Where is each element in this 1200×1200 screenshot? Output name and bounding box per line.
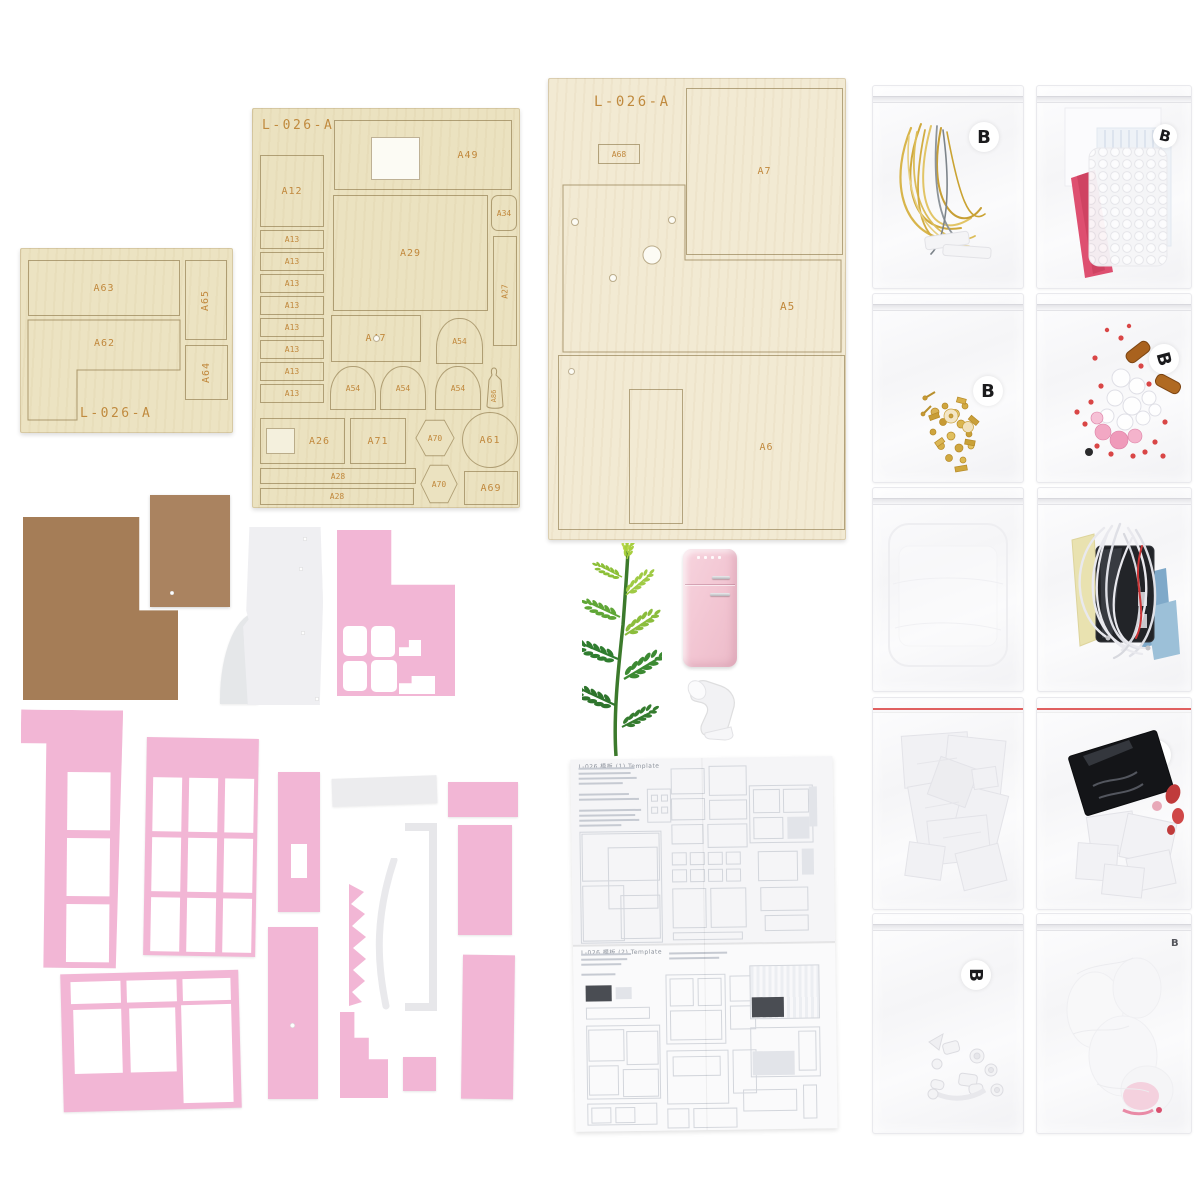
manual-diagram-box bbox=[588, 1029, 624, 1061]
manual-diagram-box bbox=[672, 852, 687, 865]
manual-diagram-box bbox=[709, 799, 747, 820]
white-bracket-piece bbox=[405, 823, 437, 1011]
wood-part-a54: A54 bbox=[380, 366, 426, 410]
bag-contents-pink-beads bbox=[1037, 294, 1191, 482]
pin-hole bbox=[303, 537, 307, 541]
part-label: A65 bbox=[201, 289, 212, 310]
wood-part-a29: A29 bbox=[333, 195, 488, 311]
wood-part-a86: A86 bbox=[484, 366, 508, 412]
manual-diagram-box bbox=[579, 819, 639, 822]
bag-contents-wires-battery bbox=[1038, 488, 1191, 691]
window-pane bbox=[151, 837, 181, 891]
manual-diagram-box bbox=[753, 817, 783, 839]
bag-contents-plastic-fittings bbox=[873, 914, 1023, 1133]
window-cutout bbox=[371, 137, 420, 180]
window-pane bbox=[66, 904, 109, 962]
door-cut bbox=[629, 389, 683, 524]
manual-diagram-box bbox=[581, 958, 627, 961]
pink-window-frame-tall bbox=[19, 710, 123, 969]
bag-label-badge: B bbox=[961, 960, 991, 990]
wood-part-a13: A13 bbox=[260, 296, 324, 315]
bag-label-badge: B bbox=[969, 122, 999, 152]
manual-diagram-box bbox=[579, 772, 631, 775]
wood-part-a6: A6 bbox=[558, 355, 845, 530]
svg-text:A86: A86 bbox=[490, 390, 498, 403]
bag-contents-soft-parts bbox=[1037, 914, 1191, 1133]
manual-diagram-box bbox=[707, 823, 747, 848]
bag-gold-beads: B bbox=[872, 293, 1024, 483]
manual-diagram-box bbox=[758, 851, 798, 882]
door-handle bbox=[710, 593, 730, 596]
pink-strip-with-hole bbox=[278, 772, 320, 912]
bag-contents-white-paper bbox=[873, 698, 1023, 909]
wood-part-a13: A13 bbox=[260, 230, 324, 249]
manual-diagram-box bbox=[586, 985, 612, 1001]
manual-diagram-box bbox=[765, 915, 809, 932]
pin-hole bbox=[290, 1023, 295, 1028]
manual-diagram-box bbox=[726, 851, 741, 864]
manual-diagram-box bbox=[581, 963, 621, 966]
manual-diagram-box bbox=[710, 887, 747, 927]
pink-stair-profile bbox=[340, 1012, 388, 1098]
freezer-handle bbox=[712, 576, 730, 579]
window-pane bbox=[150, 897, 180, 951]
manual-diagram-box bbox=[693, 1108, 737, 1129]
bag-label-badge: B bbox=[973, 376, 1003, 406]
manual-diagram-box bbox=[708, 852, 723, 865]
stair-cutout bbox=[371, 626, 395, 657]
bag-white-paper bbox=[872, 697, 1024, 910]
wood-part-a28: A28 bbox=[260, 468, 416, 484]
sheet-code: L-026-A bbox=[80, 406, 152, 421]
manual-diagram-box bbox=[579, 809, 641, 812]
plywood-sheet-3: L-026-A A68 A7 A5 A6 bbox=[548, 78, 846, 540]
bag-soft-parts: B bbox=[1036, 913, 1192, 1134]
manual-diagram-box bbox=[620, 895, 661, 940]
window-pane bbox=[152, 777, 182, 831]
manual-diagram-box bbox=[760, 887, 808, 912]
manual-diagram-box bbox=[589, 1065, 619, 1095]
wood-part-a13: A13 bbox=[260, 384, 324, 403]
bag-black-sheet: A bbox=[1036, 697, 1192, 910]
window-pane bbox=[129, 1007, 177, 1072]
white-curved-trim bbox=[372, 858, 402, 1010]
manual-diagram-box bbox=[753, 1051, 795, 1076]
pink-strip-tall bbox=[268, 927, 318, 1099]
wood-part-a13: A13 bbox=[260, 318, 324, 337]
pink-square-small bbox=[403, 1057, 436, 1091]
pink-zigzag-trim bbox=[344, 880, 374, 1010]
white-strip bbox=[332, 775, 438, 807]
manual-diagram-box bbox=[669, 957, 719, 960]
transom-pane bbox=[182, 978, 231, 1001]
manual-diagram-box bbox=[669, 978, 693, 1006]
manual-diagram-box bbox=[671, 768, 705, 794]
rect-cutout bbox=[291, 844, 307, 878]
wood-part-a49: A49 bbox=[334, 120, 512, 190]
pin-hole bbox=[299, 567, 303, 571]
miniature-fridge bbox=[683, 549, 737, 667]
miniature-tree bbox=[582, 543, 662, 758]
manual-diagram-box bbox=[671, 798, 705, 820]
bag-plastic-fittings: B bbox=[872, 913, 1024, 1134]
manual-diagram-box bbox=[579, 798, 639, 801]
wood-part-a70: A70 bbox=[415, 419, 455, 457]
manual-diagram-box bbox=[670, 1010, 722, 1041]
bag-clear-sheets bbox=[872, 487, 1024, 692]
pink-rect-tall bbox=[461, 955, 515, 1100]
pink-shopfront-frame bbox=[60, 970, 242, 1113]
drill-hole bbox=[373, 335, 380, 342]
stair-step-cutout bbox=[399, 640, 421, 656]
wood-part-a54: A54 bbox=[435, 366, 481, 410]
manual-diagram-box bbox=[752, 997, 784, 1017]
manual-diagram-box bbox=[616, 987, 632, 999]
manual-diagram-box bbox=[672, 869, 687, 882]
fridge-logo bbox=[697, 556, 700, 559]
white-elbow-part bbox=[685, 675, 743, 741]
wood-part-a13: A13 bbox=[260, 362, 324, 381]
window-pane bbox=[222, 898, 252, 952]
wood-part-a64: A64 bbox=[185, 345, 228, 400]
manual-diagram-box bbox=[753, 789, 780, 813]
manual-diagram-box bbox=[579, 782, 623, 785]
manual-diagram-box bbox=[669, 952, 727, 955]
manual-diagram-box bbox=[672, 888, 707, 928]
stair-step-cutout bbox=[399, 676, 435, 694]
window-pane bbox=[224, 778, 254, 832]
bag-label-small: B bbox=[1171, 938, 1179, 949]
bag-contents-wire bbox=[873, 86, 1023, 288]
window-pane bbox=[187, 838, 217, 892]
white-wall-piece bbox=[243, 527, 323, 705]
manual-diagram-box bbox=[809, 786, 818, 826]
pink-stair-wall bbox=[337, 530, 455, 696]
manual-diagram-box bbox=[787, 817, 809, 839]
bag-sheets: B bbox=[1036, 85, 1192, 289]
window-pane bbox=[223, 838, 253, 892]
manual-diagram-box bbox=[626, 1031, 658, 1065]
wood-part-a12: A12 bbox=[260, 155, 324, 227]
transom-pane bbox=[70, 981, 121, 1004]
wood-part-a54: A54 bbox=[436, 318, 483, 364]
cutout bbox=[266, 428, 295, 454]
manual-diagram-box bbox=[661, 794, 668, 801]
manual-diagram-box bbox=[586, 1007, 650, 1020]
manual-diagram-box bbox=[783, 789, 809, 813]
window-pane bbox=[188, 778, 218, 832]
manual-diagram-box bbox=[615, 1107, 635, 1123]
template-sheet: L-026 模板 (1) Template L-026 模板 (2) Templ… bbox=[570, 756, 837, 1132]
manual-diagram-box bbox=[673, 1056, 721, 1077]
manual-diagram-box bbox=[582, 885, 625, 942]
manual-diagram-box bbox=[743, 1089, 797, 1112]
transom-pane bbox=[126, 979, 177, 1002]
window-pane bbox=[66, 838, 109, 896]
wood-part-a70: A70 bbox=[420, 464, 458, 504]
pin-hole bbox=[315, 697, 319, 701]
bag-pink-beads: B bbox=[1036, 293, 1192, 483]
manual-diagram-box bbox=[579, 824, 621, 827]
manual-diagram-box bbox=[579, 814, 635, 817]
stair-cutout bbox=[343, 661, 367, 691]
drill-hole bbox=[568, 368, 575, 375]
sheet-code: L-026-A bbox=[262, 118, 334, 133]
freezer-divider bbox=[685, 584, 735, 585]
plywood-sheet-2: L-026-A A12 A13 A13 A13 A13 A13 A13 A13 … bbox=[252, 108, 520, 508]
stair-cutout bbox=[371, 660, 397, 692]
wood-part-a54: A54 bbox=[330, 366, 376, 410]
bag-contents-clear-sheets bbox=[873, 488, 1023, 691]
manual-diagram-box bbox=[651, 795, 658, 802]
bag-wire: B bbox=[872, 85, 1024, 289]
window-pane bbox=[67, 772, 110, 830]
cardboard-panel-small bbox=[150, 495, 230, 607]
wood-part-a69: A69 bbox=[464, 471, 518, 505]
manual-diagram-box bbox=[581, 973, 615, 975]
stair-cutout bbox=[343, 626, 367, 656]
wood-part-a13: A13 bbox=[260, 274, 324, 293]
manual-diagram-box bbox=[673, 931, 743, 940]
manual-diagram-box bbox=[803, 1084, 817, 1118]
manual-diagram-box bbox=[802, 848, 814, 874]
plywood-sheet-1: A63 A62 A65 A64 L-026-A bbox=[20, 248, 233, 433]
manual-diagram-box bbox=[661, 806, 668, 813]
window-pane bbox=[73, 1009, 123, 1074]
manual-diagram-box bbox=[709, 765, 747, 796]
manual-diagram-box bbox=[798, 1030, 817, 1070]
pin-hole bbox=[170, 591, 174, 595]
manual-diagram-box bbox=[591, 1107, 611, 1123]
door-opening bbox=[181, 1004, 234, 1103]
product-photo-dollhouse-kit: A63 A62 A65 A64 L-026-A L-026-A A12 A13 … bbox=[0, 0, 1200, 1200]
svg-text:A5: A5 bbox=[780, 300, 795, 313]
window-pane bbox=[186, 898, 216, 952]
wood-part-a13: A13 bbox=[260, 340, 324, 359]
manual-diagram-box bbox=[579, 777, 637, 780]
manual-diagram-box bbox=[697, 978, 721, 1006]
manual-diagram-box bbox=[623, 1069, 659, 1097]
wood-part-a65: A65 bbox=[185, 260, 227, 340]
manual-diagram-box bbox=[651, 807, 658, 814]
wood-part-a13: A13 bbox=[260, 252, 324, 271]
part-label: A62 bbox=[94, 338, 115, 349]
bag-wires-battery bbox=[1037, 487, 1192, 692]
wood-part-a61: A61 bbox=[462, 412, 518, 468]
wood-part-a34: A34 bbox=[491, 195, 517, 231]
pink-rect-vertical bbox=[458, 825, 512, 935]
manual-diagram-box bbox=[671, 824, 703, 844]
manual-diagram-box bbox=[667, 1108, 689, 1128]
wood-part-a71: A71 bbox=[350, 418, 406, 464]
wood-part-a28: A28 bbox=[260, 488, 414, 505]
bag-contents-black-sheet bbox=[1037, 698, 1191, 909]
manual-diagram-box bbox=[579, 793, 629, 796]
part-label: A64 bbox=[201, 362, 212, 383]
pink-rect-small bbox=[448, 782, 518, 817]
wood-part-a27: A27 bbox=[493, 236, 517, 346]
manual-diagram-box bbox=[726, 868, 741, 881]
manual-diagram-box bbox=[708, 869, 723, 882]
bag-contents-sheets bbox=[1037, 86, 1191, 288]
pink-window-frame-grid bbox=[143, 737, 259, 957]
pin-hole bbox=[301, 631, 305, 635]
